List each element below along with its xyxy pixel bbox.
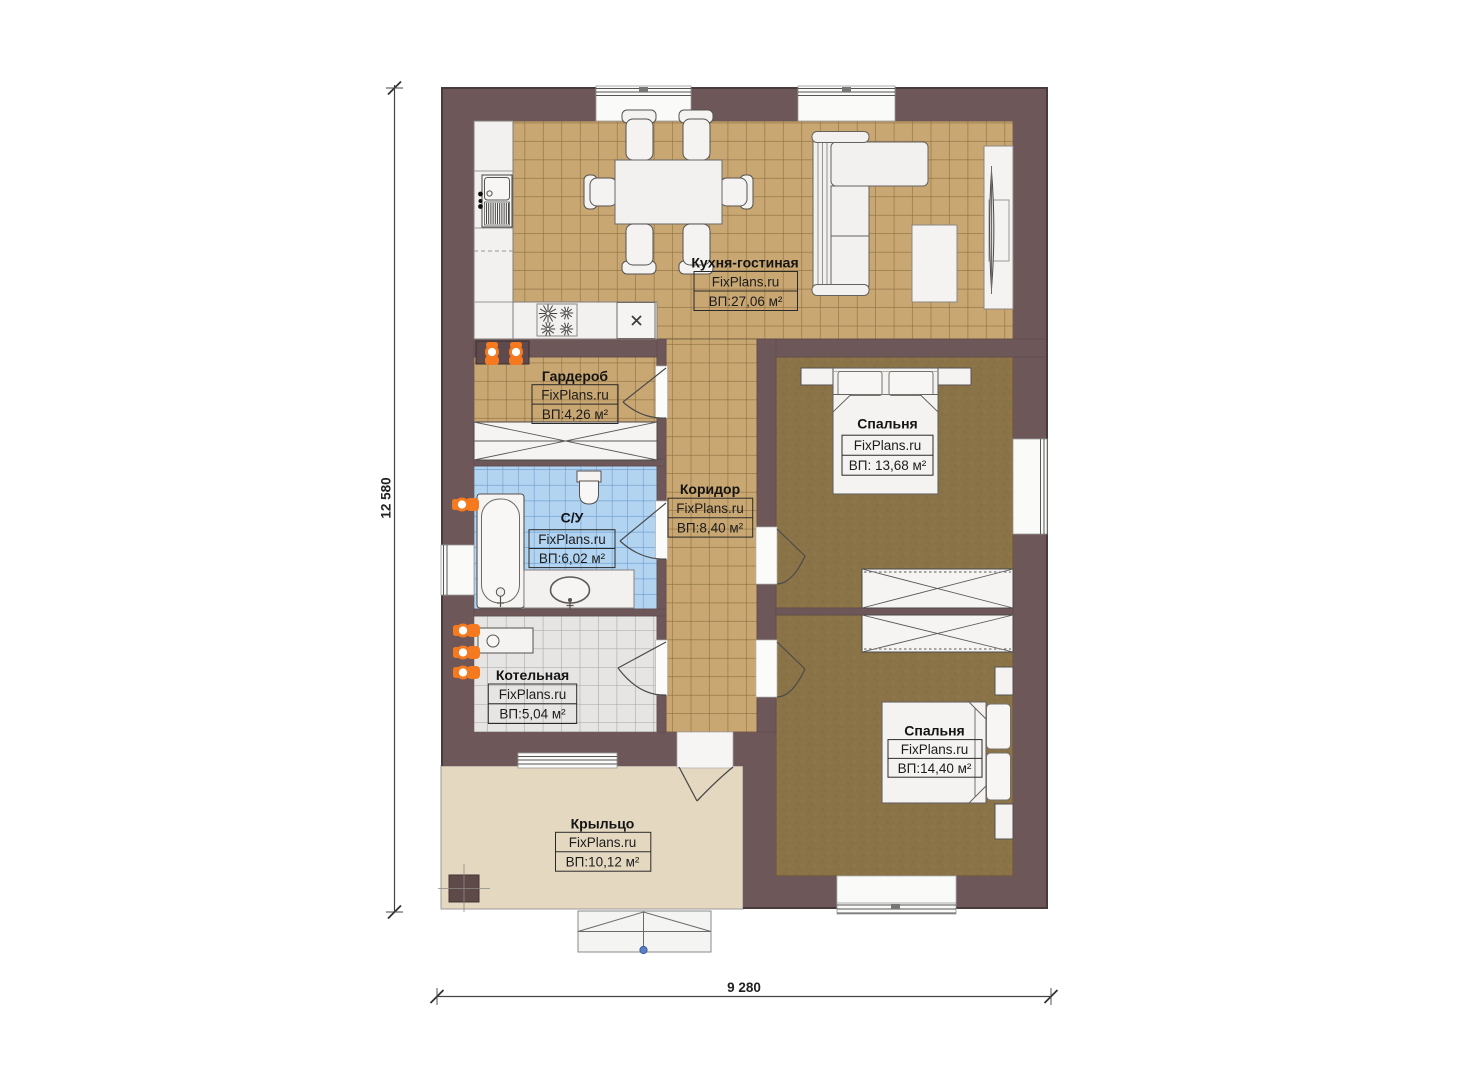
svg-text:ВП:4,26 м²: ВП:4,26 м² (542, 407, 609, 422)
svg-text:FixPlans.ru: FixPlans.ru (712, 275, 780, 290)
svg-text:С/У: С/У (561, 510, 584, 526)
svg-text:Спальня: Спальня (857, 416, 917, 432)
svg-text:ВП:27,06 м²: ВП:27,06 м² (709, 294, 783, 309)
svg-text:Спальня: Спальня (904, 723, 964, 739)
svg-text:ВП:8,40 м²: ВП:8,40 м² (677, 520, 744, 535)
svg-text:9 280: 9 280 (727, 980, 761, 995)
svg-text:ВП: 13,68 м²: ВП: 13,68 м² (849, 458, 927, 473)
svg-text:FixPlans.ru: FixPlans.ru (676, 501, 744, 516)
svg-text:FixPlans.ru: FixPlans.ru (569, 835, 637, 850)
svg-text:ВП:6,02 м²: ВП:6,02 м² (539, 551, 606, 566)
svg-text:Гардероб: Гардероб (542, 368, 609, 384)
svg-text:ВП:14,40 м²: ВП:14,40 м² (898, 761, 972, 776)
svg-text:FixPlans.ru: FixPlans.ru (541, 388, 609, 403)
svg-text:FixPlans.ru: FixPlans.ru (854, 438, 922, 453)
svg-text:FixPlans.ru: FixPlans.ru (538, 532, 606, 547)
svg-text:Кухня-гостиная: Кухня-гостиная (691, 255, 798, 271)
svg-text:ВП:5,04 м²: ВП:5,04 м² (499, 707, 566, 722)
svg-text:12 580: 12 580 (379, 477, 394, 518)
svg-text:FixPlans.ru: FixPlans.ru (499, 687, 567, 702)
svg-text:FixPlans.ru: FixPlans.ru (901, 742, 969, 757)
svg-text:Крыльцо: Крыльцо (571, 815, 635, 831)
svg-text:ВП:10,12 м²: ВП:10,12 м² (566, 855, 640, 870)
svg-text:Коридор: Коридор (680, 481, 740, 497)
svg-text:Котельная: Котельная (496, 667, 569, 683)
